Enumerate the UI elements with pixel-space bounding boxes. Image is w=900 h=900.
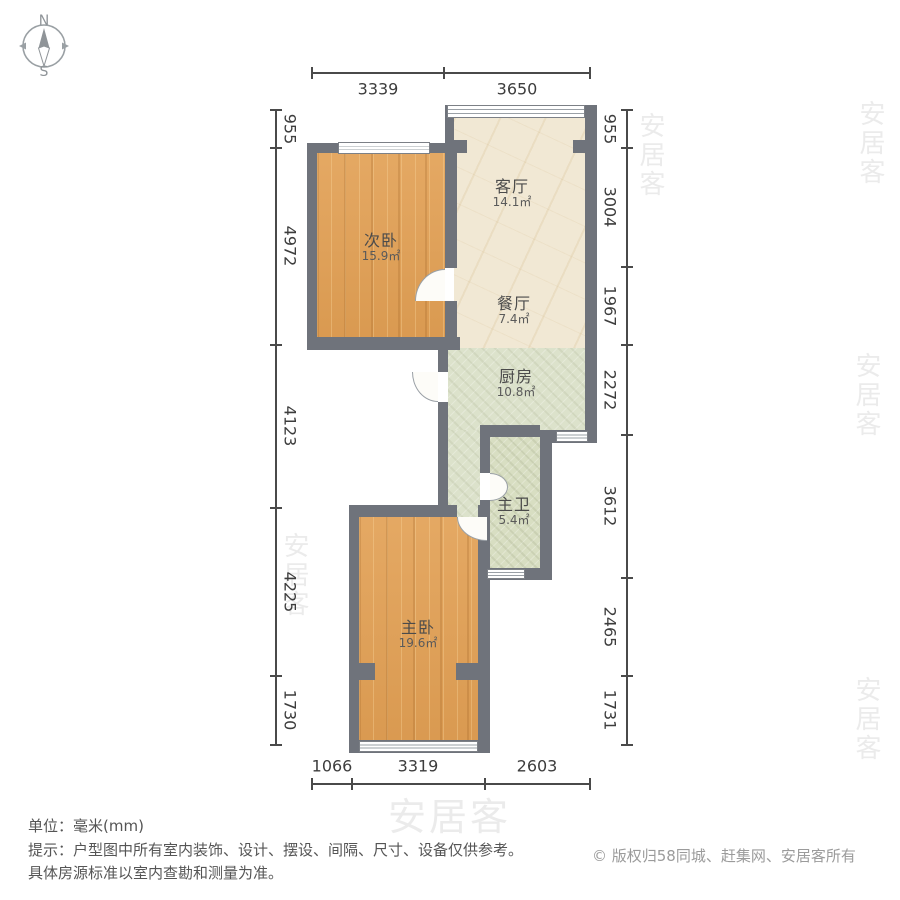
anjuke-watermark: 安居客 — [848, 676, 885, 763]
dim-line-top — [312, 72, 590, 74]
room-name: 主卫 — [497, 496, 531, 514]
room-name: 餐厅 — [497, 295, 531, 313]
dim-tick — [589, 67, 591, 79]
room-area: 14.1㎡ — [493, 196, 532, 210]
room-name: 主卧 — [399, 619, 438, 637]
room-label-master-bedroom: 主卧 19.6㎡ — [399, 619, 438, 651]
window-secondary-bedroom — [338, 142, 430, 154]
wall — [456, 663, 490, 680]
compass-icon: N S — [12, 8, 76, 80]
door-arc-entry — [412, 372, 438, 402]
dim-label: 2272 — [601, 370, 620, 411]
room-label-kitchen: 厨房 10.8㎡ — [497, 368, 536, 400]
window-master-bedroom — [359, 741, 478, 752]
dim-label: 955 — [601, 114, 620, 145]
wall — [445, 140, 467, 153]
dim-label: 3339 — [358, 80, 399, 99]
window-bathroom — [487, 569, 525, 579]
dim-tick — [270, 675, 282, 677]
room-name: 厨房 — [497, 368, 536, 386]
dim-label: 4225 — [281, 572, 300, 613]
floorplan-canvas: 安居客 安居客 安居客 安居客 安居客 安居客 N S — [0, 0, 900, 900]
dim-label: 1731 — [601, 690, 620, 731]
dim-line-bottom — [312, 783, 590, 785]
dim-tick — [270, 507, 282, 509]
dim-tick — [311, 67, 313, 79]
dim-tick — [621, 266, 633, 268]
dim-label: 1066 — [312, 757, 353, 776]
wall — [445, 301, 457, 350]
dim-label: 3612 — [601, 486, 620, 527]
dim-line-left — [275, 110, 277, 745]
room-area: 10.8㎡ — [497, 386, 536, 400]
wall — [349, 663, 375, 680]
compass-north-label: N — [39, 13, 49, 29]
room-area: 19.6㎡ — [399, 637, 438, 651]
anjuke-watermark: 安居客 — [388, 786, 511, 841]
dim-label: 3650 — [497, 80, 538, 99]
dim-tick — [270, 344, 282, 346]
dim-label: 1730 — [281, 690, 300, 731]
wall — [307, 143, 317, 350]
wall — [478, 505, 490, 517]
anjuke-watermark: 安居客 — [852, 100, 889, 187]
wall — [438, 350, 448, 372]
window-living-north — [447, 105, 585, 118]
dim-label: 3004 — [601, 187, 620, 228]
room-area: 7.4㎡ — [497, 313, 531, 327]
wall — [445, 143, 457, 268]
unit-note: 单位：毫米(mm) — [28, 815, 144, 836]
dim-label: 2465 — [601, 607, 620, 648]
room-label-master-bathroom: 主卫 5.4㎡ — [497, 496, 531, 528]
dim-line-right — [626, 110, 628, 745]
dim-tick — [270, 147, 282, 149]
dim-tick — [621, 434, 633, 436]
dim-label: 4123 — [281, 406, 300, 447]
room-label-secondary-bedroom: 次卧 15.9㎡ — [362, 232, 401, 264]
room-area: 15.9㎡ — [362, 250, 401, 264]
hallway-floor — [448, 430, 480, 517]
wall — [585, 105, 597, 443]
anjuke-watermark: 安居客 — [632, 112, 669, 199]
dim-tick — [621, 147, 633, 149]
dim-tick — [311, 778, 313, 790]
dim-tick — [270, 109, 282, 111]
dim-label: 955 — [281, 114, 300, 145]
wall — [307, 337, 460, 350]
dim-tick — [621, 675, 633, 677]
room-label-living-room: 客厅 14.1㎡ — [493, 178, 532, 210]
anjuke-watermark: 安居客 — [848, 352, 885, 439]
dim-label: 2603 — [517, 757, 558, 776]
wall — [438, 402, 448, 517]
dim-label: 4972 — [281, 226, 300, 267]
wall — [540, 437, 552, 580]
dim-tick — [351, 778, 353, 790]
room-area: 5.4㎡ — [497, 514, 531, 528]
dim-label: 3319 — [398, 757, 439, 776]
dim-tick — [621, 744, 633, 746]
wall — [478, 517, 490, 753]
wall — [480, 425, 490, 473]
dim-tick — [443, 67, 445, 79]
dim-tick — [589, 778, 591, 790]
room-name: 次卧 — [362, 232, 401, 250]
room-label-dining-room: 餐厅 7.4㎡ — [497, 295, 531, 327]
dim-tick — [484, 778, 486, 790]
disclaimer-line-1: 提示：户型图中所有室内装饰、设计、摆设、间隔、尺寸、设备仅供参考。 — [28, 839, 523, 860]
disclaimer-line-2: 具体房源标准以室内查勘和测量为准。 — [28, 862, 283, 883]
dim-tick — [621, 344, 633, 346]
dim-label: 1967 — [601, 286, 620, 327]
copyright-notice: © 版权归58同城、赶集网、安居客所有 — [592, 845, 856, 866]
dim-tick — [270, 744, 282, 746]
wall — [349, 505, 359, 753]
dim-tick — [621, 577, 633, 579]
wall — [349, 505, 457, 517]
dim-tick — [621, 109, 633, 111]
window-kitchen — [556, 431, 588, 442]
room-name: 客厅 — [493, 178, 532, 196]
